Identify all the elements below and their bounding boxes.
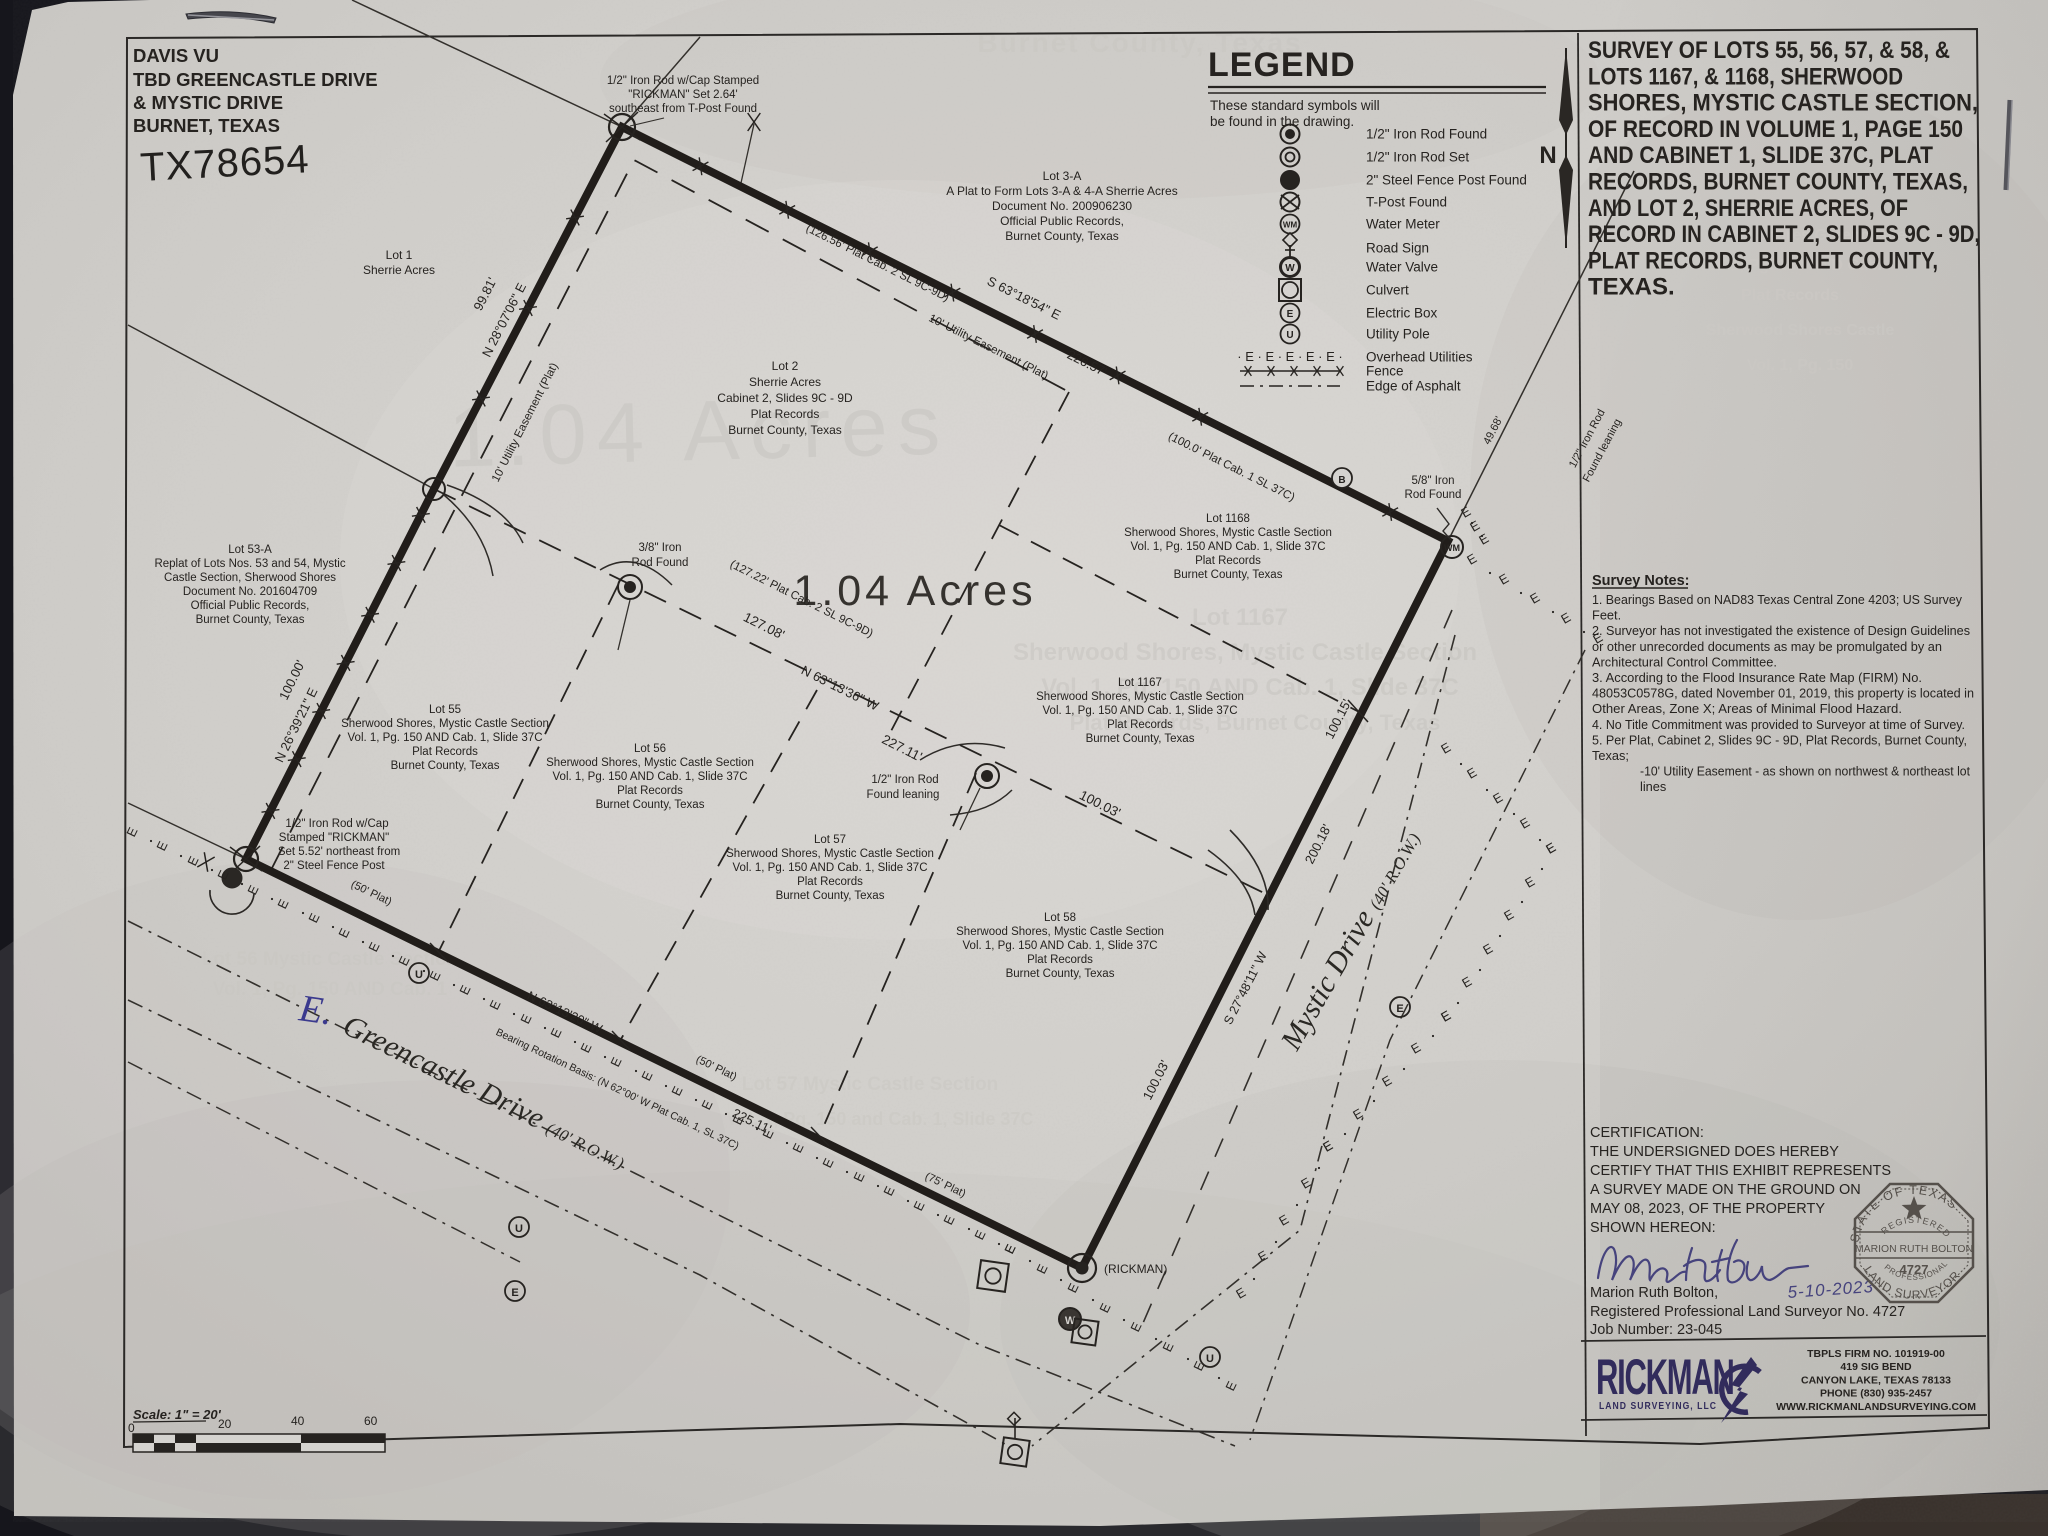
svg-text:Plat Records: Plat Records: [797, 876, 863, 888]
svg-text:Document No. 200906230: Document No. 200906230: [992, 199, 1132, 213]
svg-text:Sherwood Shores, Mystic Castle: Sherwood Shores, Mystic Castle Section: [546, 757, 754, 769]
svg-text:MAY 08, 2023, OF THE PROPERTY: MAY 08, 2023, OF THE PROPERTY: [1590, 1201, 1825, 1217]
svg-text:Sherrie Acres: Sherrie Acres: [363, 263, 435, 277]
svg-text:Sherwood Shores, Mystic Castle: Sherwood Shores, Mystic Castle Section: [1036, 691, 1244, 703]
svg-text:Vol. 1, Pg. 150 AND Cab. 1, Sl: Vol. 1, Pg. 150 AND Cab. 1, Slide 37C: [553, 771, 748, 783]
svg-text:Lot 53-A: Lot 53-A: [228, 544, 272, 556]
svg-text:Sherwood Shores, Mystic Castle: Sherwood Shores, Mystic Castle Section: [956, 926, 1164, 938]
svg-text:Lot 56: Lot 56: [634, 743, 666, 755]
svg-text:"RICKMAN" Set 2.64': "RICKMAN" Set 2.64': [628, 89, 737, 101]
svg-text:3. According to the Flood Insu: 3. According to the Flood Insurance Rate…: [1592, 670, 1922, 685]
svg-text:Rod Found: Rod Found: [632, 557, 689, 569]
svg-text:SHOWN HEREON:: SHOWN HEREON:: [1590, 1220, 1716, 1236]
svg-text:Job Number: 23-045: Job Number: 23-045: [1590, 1322, 1722, 1338]
svg-text:Vol. 1, Pg. 150: Vol. 1, Pg. 150: [1747, 357, 1854, 374]
svg-text:TEXAS.: TEXAS.: [1588, 274, 1675, 301]
svg-text:Vol. 1, Pg. 150 AND Cab. 1, Sl: Vol. 1, Pg. 150 AND Cab. 1, Slide 37C: [963, 940, 1158, 952]
svg-text:MARION RUTH BOLTON: MARION RUTH BOLTON: [1855, 1244, 1973, 1255]
svg-text:Survey Notes:: Survey Notes:: [1592, 573, 1690, 589]
svg-text:Replat of Lots Nos. 53 and 54,: Replat of Lots Nos. 53 and 54, Mystic: [154, 558, 345, 570]
svg-text:CERTIFY THAT THIS EXHIBIT REPR: CERTIFY THAT THIS EXHIBIT REPRESENTS: [1590, 1163, 1891, 1179]
svg-text:TBPLS FIRM NO. 101919-00: TBPLS FIRM NO. 101919-00: [1807, 1348, 1945, 1360]
svg-text:W: W: [1285, 263, 1295, 274]
svg-text:be found in the drawing.: be found in the drawing.: [1210, 114, 1354, 129]
svg-text:Plat Records: Plat Records: [1195, 555, 1261, 567]
svg-text:2" Steel Fence Post: 2" Steel Fence Post: [283, 860, 385, 872]
svg-text:Road Sign: Road Sign: [1366, 241, 1429, 256]
svg-text:Lot 57 Mystic Castle Section: Lot 57 Mystic Castle Section: [742, 1074, 999, 1095]
svg-text:SURVEY OF LOTS 55, 56, 57, & 5: SURVEY OF LOTS 55, 56, 57, & 58, &: [1588, 37, 1950, 64]
svg-text:Sherwood Shores, Mystic Castle: Sherwood Shores, Mystic Castle Section: [1013, 639, 1477, 666]
svg-text:Plat Records: Plat Records: [1107, 719, 1173, 731]
svg-text:BURNET, TEXAS: BURNET, TEXAS: [133, 115, 280, 136]
svg-text:Overhead Utilities: Overhead Utilities: [1366, 350, 1473, 365]
svg-text:Burnet County, Texas: Burnet County, Texas: [1174, 569, 1283, 581]
svg-text:2. Surveyor has not investigat: 2. Surveyor has not investigated the exi…: [1592, 623, 1970, 638]
svg-text:Vol. 1, Pg. 150 AND Cab. 1, Sl: Vol. 1, Pg. 150 AND Cab. 1, Slide 37C: [733, 862, 928, 874]
svg-text:N: N: [1539, 142, 1556, 169]
svg-text:Burnet County, Texas: Burnet County, Texas: [728, 423, 842, 437]
svg-text:1/2" Iron Rod: 1/2" Iron Rod: [871, 774, 938, 786]
svg-text:LOTS 1167, & 1168, SHERWOOD: LOTS 1167, & 1168, SHERWOOD: [1588, 63, 1903, 90]
svg-text:Lot 3-A: Lot 3-A: [1043, 169, 1082, 183]
svg-text:Found leaning: Found leaning: [867, 789, 940, 801]
svg-text:Registered Professional Land S: Registered Professional Land Surveyor No…: [1590, 1304, 1905, 1320]
svg-text:E: E: [511, 1287, 518, 1299]
svg-text:4. No Title Commitment was pro: 4. No Title Commitment was provided to S…: [1592, 717, 1965, 732]
svg-text:These standard symbols will: These standard symbols will: [1210, 98, 1380, 113]
svg-text:Burnet County, Texas: Burnet County, Texas: [596, 799, 705, 811]
svg-text:Burnet County, Texas: Burnet County, Texas: [391, 760, 500, 772]
svg-text:Plat Records: Plat Records: [617, 785, 683, 797]
svg-text:U: U: [1286, 330, 1293, 341]
svg-text:A SURVEY MADE ON THE GROUND ON: A SURVEY MADE ON THE GROUND ON: [1590, 1182, 1861, 1198]
svg-text:Feet.: Feet.: [1592, 608, 1621, 623]
svg-text:Burnet County, Texas: Burnet County, Texas: [776, 890, 885, 902]
svg-text:OF RECORD IN VOLUME 1, PAGE 15: OF RECORD IN VOLUME 1, PAGE 150: [1588, 116, 1963, 143]
svg-text:LAND SURVEYING, LLC: LAND SURVEYING, LLC: [1599, 1401, 1717, 1412]
svg-text:Culvert: Culvert: [1366, 283, 1409, 298]
svg-text:1/2" Iron Rod Found: 1/2" Iron Rod Found: [1366, 127, 1487, 142]
svg-text:CERTIFICATION:: CERTIFICATION:: [1590, 1125, 1704, 1141]
svg-text:Water Valve: Water Valve: [1366, 260, 1438, 275]
svg-text:· E · E · E · E · E ·: · E · E · E · E · E ·: [1237, 349, 1342, 364]
svg-text:Cabinet 2, Slides 9C - 9D: Cabinet 2, Slides 9C - 9D: [717, 391, 853, 405]
svg-text:Utility Pole: Utility Pole: [1366, 327, 1430, 342]
svg-text:SHORES, MYSTIC CASTLE SECTION,: SHORES, MYSTIC CASTLE SECTION,: [1588, 90, 1978, 117]
svg-text:60: 60: [364, 1414, 378, 1428]
svg-text:Official Public Records,: Official Public Records,: [1000, 214, 1124, 228]
svg-text:20: 20: [218, 1417, 232, 1431]
svg-text:(RICKMAN): (RICKMAN): [1104, 1262, 1167, 1276]
svg-text:Sherwood Shores, Mystic Castle: Sherwood Shores, Mystic Castle Section: [1124, 527, 1332, 539]
svg-text:Burnet County, Texas: Burnet County, Texas: [1006, 968, 1115, 980]
svg-text:1/2" Iron Rod w/Cap Stamped: 1/2" Iron Rod w/Cap Stamped: [607, 75, 759, 87]
svg-text:Burnet County, Texas: Burnet County, Texas: [196, 614, 305, 626]
svg-text:0: 0: [128, 1421, 135, 1435]
svg-text:5/8" Iron: 5/8" Iron: [1411, 475, 1454, 487]
svg-text:Sherrie Acres: Sherrie Acres: [749, 375, 821, 389]
svg-text:WM: WM: [1444, 543, 1460, 553]
svg-text:Electric Box: Electric Box: [1366, 306, 1438, 321]
svg-text:LEGEND: LEGEND: [1208, 46, 1356, 84]
svg-text:B: B: [1338, 475, 1345, 486]
svg-text:Plat Records: Plat Records: [412, 746, 478, 758]
svg-text:Rod Found: Rod Found: [1405, 489, 1462, 501]
svg-text:WWW.RICKMANLANDSURVEYING.COM: WWW.RICKMANLANDSURVEYING.COM: [1776, 1401, 1976, 1413]
svg-text:& MYSTIC DRIVE: & MYSTIC DRIVE: [133, 92, 283, 113]
svg-text:Sherwood Shores, Mystic Castle: Sherwood Shores, Mystic Castle Section: [341, 718, 549, 730]
svg-text:Texas;: Texas;: [1592, 748, 1629, 763]
svg-text:Marion Ruth Bolton,: Marion Ruth Bolton,: [1590, 1285, 1718, 1301]
svg-text:U: U: [415, 969, 423, 981]
svg-text:Official Public Records,: Official Public Records,: [191, 600, 310, 612]
svg-text:DAVIS VU: DAVIS VU: [133, 45, 219, 66]
svg-text:2" Steel Fence Post Found: 2" Steel Fence Post Found: [1366, 173, 1527, 188]
svg-text:Lot 1167: Lot 1167: [1192, 604, 1288, 631]
svg-text:CANYON LAKE, TEXAS 78133: CANYON LAKE, TEXAS 78133: [1801, 1374, 1951, 1386]
svg-text:U: U: [515, 1223, 523, 1235]
svg-text:Burnet County, Texas: Burnet County, Texas: [1005, 229, 1119, 243]
svg-text:1. Bearings Based on NAD83 Tex: 1. Bearings Based on NAD83 Texas Central…: [1592, 592, 1963, 607]
svg-text:Lot 58: Lot 58: [1044, 912, 1076, 924]
svg-text:Scale: 1" = 20': Scale: 1" = 20': [133, 1407, 222, 1422]
svg-text:E: E: [1396, 1003, 1403, 1015]
svg-text:Lot 1167: Lot 1167: [1118, 677, 1162, 689]
svg-text:RECORD IN CABINET 2, SLIDES 9C: RECORD IN CABINET 2, SLIDES 9C - 9D,: [1588, 221, 1980, 248]
svg-text:Document No. 201604709: Document No. 201604709: [183, 586, 317, 598]
svg-text:Other Areas, Zone X; Areas of: Other Areas, Zone X; Areas of Minimal Fl…: [1592, 701, 1902, 716]
svg-text:Water Meter: Water Meter: [1366, 217, 1440, 232]
svg-text:TX78654: TX78654: [139, 137, 310, 190]
svg-text:Stamped "RICKMAN": Stamped "RICKMAN": [279, 832, 389, 844]
svg-text:Lot 2: Lot 2: [772, 359, 799, 373]
svg-text:AND CABINET 1, SLIDE 37C, PLAT: AND CABINET 1, SLIDE 37C, PLAT: [1588, 142, 1933, 169]
svg-text:419 SIG BEND: 419 SIG BEND: [1840, 1361, 1912, 1373]
svg-text:5. Per Plat, Cabinet 2, Slides: 5. Per Plat, Cabinet 2, Slides 9C - 9D, …: [1592, 732, 1967, 747]
svg-text:THE UNDERSIGNED DOES HEREBY: THE UNDERSIGNED DOES HEREBY: [1590, 1144, 1839, 1160]
svg-text:Sherwood Shores, Mystic Castle: Sherwood Shores, Mystic Castle Section: [726, 848, 934, 860]
svg-text:WM: WM: [1283, 221, 1298, 230]
svg-text:Castle Section, Sherwood Shore: Castle Section, Sherwood Shores: [164, 572, 336, 584]
svg-text:48053C0578G, dated November 01: 48053C0578G, dated November 01, 2019, th…: [1592, 686, 1974, 701]
svg-text:Burnet County, Texas: Burnet County, Texas: [1086, 733, 1195, 745]
svg-text:or other unrecorded documents: or other unrecorded documents as may be …: [1592, 639, 1942, 654]
svg-text:RICKMAN: RICKMAN: [1596, 1348, 1734, 1404]
svg-text:lines: lines: [1640, 779, 1666, 794]
svg-text:Plat Records: Plat Records: [751, 407, 820, 421]
svg-text:PHONE (830) 935-2457: PHONE (830) 935-2457: [1820, 1388, 1932, 1400]
svg-text:Architectural Control Committe: Architectural Control Committee.: [1592, 654, 1777, 669]
svg-text:E.: E.: [296, 987, 335, 1033]
svg-text:Fence: Fence: [1366, 364, 1404, 379]
svg-text:A Plat to Form Lots 3-A & 4-A: A Plat to Form Lots 3-A & 4-A Sherrie Ac…: [946, 184, 1177, 198]
svg-text:Lot 1168: Lot 1168: [1206, 513, 1250, 525]
svg-text:-10' Utility Easement - as sho: -10' Utility Easement - as shown on nort…: [1640, 764, 1970, 779]
svg-text:RECORDS, BURNET COUNTY, TEXAS,: RECORDS, BURNET COUNTY, TEXAS,: [1588, 169, 1968, 196]
svg-text:PLAT RECORDS, BURNET COUNTY,: PLAT RECORDS, BURNET COUNTY,: [1588, 247, 1938, 274]
svg-text:E: E: [1287, 309, 1294, 320]
svg-text:Plat Records: Plat Records: [1741, 287, 1839, 304]
svg-text:Lot 55: Lot 55: [429, 704, 461, 716]
svg-text:Lot 57: Lot 57: [814, 834, 846, 846]
svg-text:Plat Records: Plat Records: [1027, 954, 1093, 966]
svg-text:Sherwood Shores Castle: Sherwood Shores Castle: [1706, 322, 1895, 339]
svg-text:U: U: [1206, 1353, 1214, 1365]
svg-text:Lot 56 Mystic Castle Section: Lot 56 Mystic Castle Section: [202, 949, 459, 970]
svg-text:TBD GREENCASTLE DRIVE: TBD GREENCASTLE DRIVE: [133, 69, 378, 90]
svg-text:1/2" Iron Rod Set: 1/2" Iron Rod Set: [1366, 150, 1469, 165]
svg-text:Edge of Asphalt: Edge of Asphalt: [1366, 379, 1461, 394]
svg-text:Set 5.52' northeast from: Set 5.52' northeast from: [278, 846, 400, 858]
svg-text:Vol. 1, Pg. 150 AND Cab. 1, Sl: Vol. 1, Pg. 150 AND Cab. 1, Slide 37C: [348, 732, 543, 744]
svg-text:T-Post Found: T-Post Found: [1366, 195, 1447, 210]
svg-text:Vol. 1, Pg. 150 AND Cab. 1, Sl: Vol. 1, Pg. 150 AND Cab. 1, Slide 37C: [1131, 541, 1326, 553]
svg-text:Lot 1: Lot 1: [386, 248, 413, 262]
svg-text:Vol. 1, Pg. 150 AND Cab. 1, Sl: Vol. 1, Pg. 150 AND Cab. 1, Slide 37C: [1043, 705, 1238, 717]
svg-text:40: 40: [291, 1414, 305, 1428]
svg-text:AND LOT 2, SHERRIE ACRES, OF: AND LOT 2, SHERRIE ACRES, OF: [1588, 195, 1908, 222]
svg-text:southeast from T-Post Found: southeast from T-Post Found: [609, 103, 757, 115]
svg-text:3/8" Iron: 3/8" Iron: [638, 542, 681, 554]
svg-text:4727: 4727: [1900, 1262, 1929, 1277]
svg-text:1/2" Iron Rod w/Cap: 1/2" Iron Rod w/Cap: [285, 818, 388, 830]
